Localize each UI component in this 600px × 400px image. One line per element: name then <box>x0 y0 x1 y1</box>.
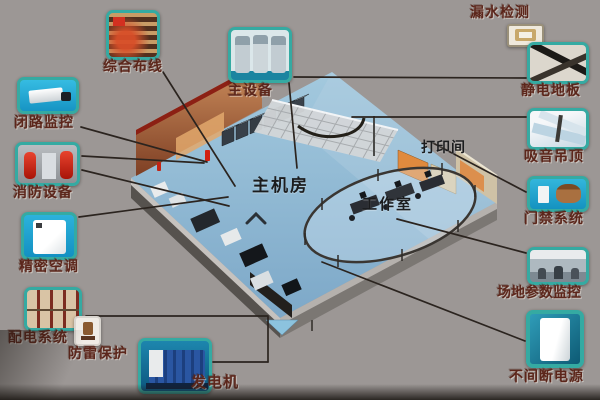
operator-icon <box>538 268 546 279</box>
main-equipment-label: 主设备 <box>228 84 273 99</box>
precision-ac-label: 精密空调 <box>19 260 79 275</box>
machine-room-diagram: 综合布线 闭路监控 消防设备 精密空调 配电系统 防雷保护 发电机 主设备 漏水… <box>0 0 600 400</box>
generator-label: 发电机 <box>191 374 239 391</box>
lightning-protection-thumbnail <box>74 316 101 346</box>
camera-icon <box>28 87 63 103</box>
extinguisher-icon <box>24 152 36 179</box>
print-room-label: 打印间 <box>421 137 466 157</box>
connector-antistatic-floor <box>294 77 526 78</box>
antistatic-floor-thumbnail <box>527 42 589 84</box>
ups-thumbnail <box>526 310 584 368</box>
connector-fire-a <box>82 156 204 163</box>
lightning-protection-label: 防雷保护 <box>68 347 128 362</box>
acoustic-ceiling-label: 吸音吊顶 <box>524 150 584 165</box>
leak-detection-label: 漏水检测 <box>470 6 530 21</box>
site-monitoring-thumbnail <box>527 247 589 285</box>
fire-equipment-thumbnail <box>15 142 80 186</box>
equipment-unit-icon <box>235 36 250 73</box>
site-monitoring-label: 场地参数监控 <box>497 286 581 301</box>
camera-lens-icon <box>61 92 71 101</box>
integrated-cabling-label: 综合布线 <box>103 60 163 75</box>
ups-label: 不间断电源 <box>509 370 584 385</box>
connector-ups <box>322 262 525 341</box>
work-room-label: 工作室 <box>362 193 413 214</box>
antistatic-floor-label: 静电地板 <box>521 84 581 99</box>
connector-precision-ac <box>79 197 228 217</box>
keypad-icon <box>538 186 549 203</box>
power-distribution-label: 配电系统 <box>8 331 68 346</box>
fire-equipment-label: 消防设备 <box>13 186 73 201</box>
cctv-thumbnail <box>17 77 79 114</box>
arrester-base-icon <box>81 336 95 340</box>
leak-sensor-label-icon <box>519 32 532 38</box>
patch-panel-icon <box>113 17 125 26</box>
arrester-icon <box>83 322 93 335</box>
ac-vent-icon <box>36 223 42 228</box>
connector-site-monitoring <box>397 219 526 253</box>
equipment-unit-icon <box>271 36 286 73</box>
acoustic-ceiling-thumbnail <box>527 108 589 150</box>
access-control-thumbnail <box>527 176 589 212</box>
operator-icon <box>571 268 579 279</box>
connector-integrated-cabling <box>163 72 235 186</box>
precision-ac-thumbnail <box>21 212 77 260</box>
ups-tower-icon <box>540 318 570 361</box>
reader-icon <box>556 184 581 203</box>
access-control-label: 门禁系统 <box>524 212 584 227</box>
equipment-unit-icon <box>253 35 268 73</box>
connector-main-equipment <box>289 83 297 168</box>
cabinet-shelf-icon <box>27 309 79 311</box>
cctv-label: 闭路监控 <box>14 116 74 131</box>
main-equipment-thumbnail <box>228 27 292 83</box>
operator-icon <box>554 266 563 279</box>
door-icon <box>42 153 56 179</box>
integrated-cabling-thumbnail <box>106 10 160 60</box>
main-room-label: 主机房 <box>252 171 309 196</box>
extinguisher-icon <box>60 151 73 179</box>
generator-panel-icon <box>149 350 163 377</box>
